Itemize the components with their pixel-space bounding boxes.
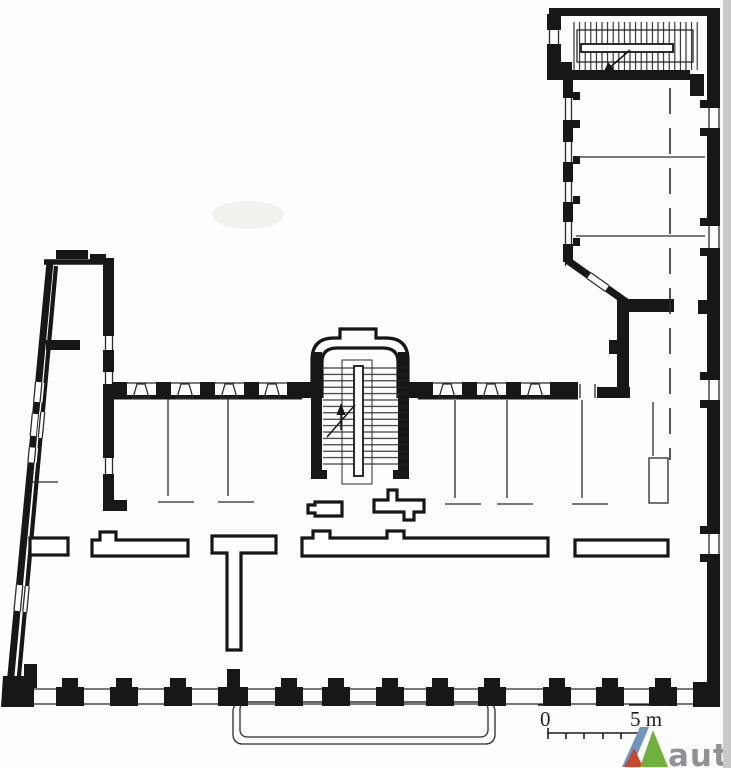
floor-plan-drawing: 0 5 m autc — [0, 0, 731, 768]
floor-plan-page: 0 5 m autc — [0, 0, 731, 768]
top-staircase — [572, 22, 702, 73]
scale-start-label: 0 — [540, 707, 551, 731]
paper-edge — [723, 0, 731, 768]
watermark-text: autc — [668, 738, 731, 768]
paper-smudge — [212, 201, 284, 229]
